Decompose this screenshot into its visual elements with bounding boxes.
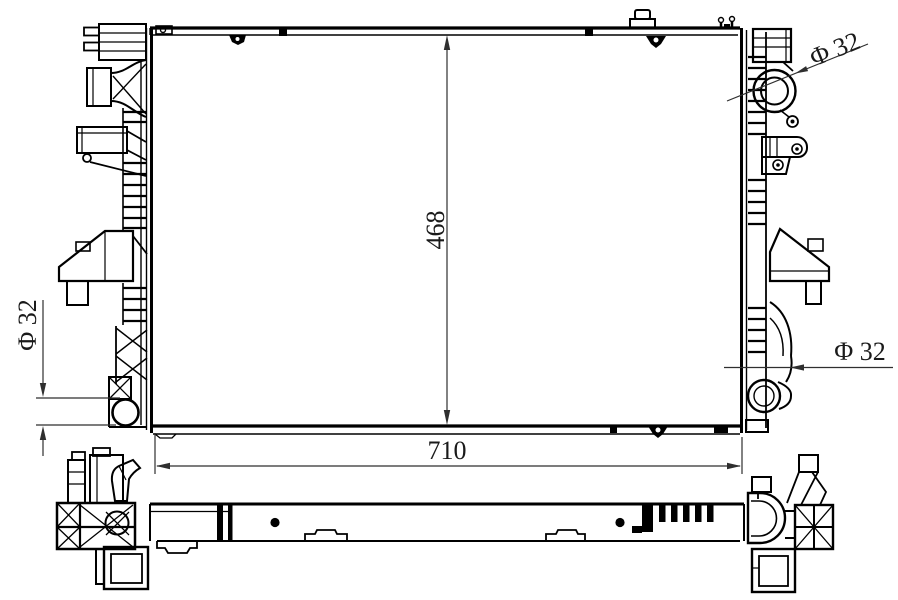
left-lower-lattice	[116, 326, 147, 384]
dimension-pipe-left: Φ 32	[13, 299, 120, 456]
pipe-bottom-right-label: Φ 32	[834, 337, 886, 366]
left-tank	[59, 24, 147, 427]
left-funnel-bracket	[87, 60, 146, 117]
arrowhead-up-icon	[444, 35, 450, 50]
leader-arrowhead-icon	[795, 66, 808, 73]
dimension-height: 468	[421, 35, 450, 425]
radiator-bottom-profile-view	[57, 448, 833, 592]
right-tank	[746, 29, 829, 432]
bottom-view-right-bracket	[748, 455, 833, 592]
arrowhead-down-icon	[40, 383, 46, 397]
bottom-view-bar	[150, 504, 744, 553]
bottom-view-left-bracket	[57, 448, 148, 589]
drawing-canvas: 468 710 Φ 32 Φ 32	[0, 0, 898, 600]
dimension-width: 710	[155, 433, 742, 474]
dimension-height-label: 468	[421, 211, 450, 250]
arrowhead-left-icon	[156, 463, 170, 469]
right-mid-bracket	[762, 137, 807, 174]
mounting-hole-right	[615, 518, 624, 527]
left-top-bracket	[84, 24, 146, 60]
bottom-edge-fittings	[610, 426, 728, 438]
arrowhead-right-icon	[727, 463, 741, 469]
left-trapezoid-bracket	[59, 231, 147, 305]
pipe-left-label: Φ 32	[13, 299, 42, 351]
mounting-hole-left	[270, 518, 279, 527]
right-trapezoid-bracket	[770, 229, 829, 304]
elbow-duct	[112, 460, 140, 501]
arrowhead-down-icon	[444, 410, 450, 425]
left-box-bracket	[77, 127, 146, 176]
cooling-fin-comb	[632, 504, 714, 533]
pipe-top-right-label: Φ 32	[806, 26, 865, 72]
right-top-bracket	[753, 29, 793, 71]
dimension-width-label: 710	[428, 436, 467, 465]
arrowhead-up-icon	[40, 426, 46, 440]
filler-cap	[630, 10, 655, 28]
